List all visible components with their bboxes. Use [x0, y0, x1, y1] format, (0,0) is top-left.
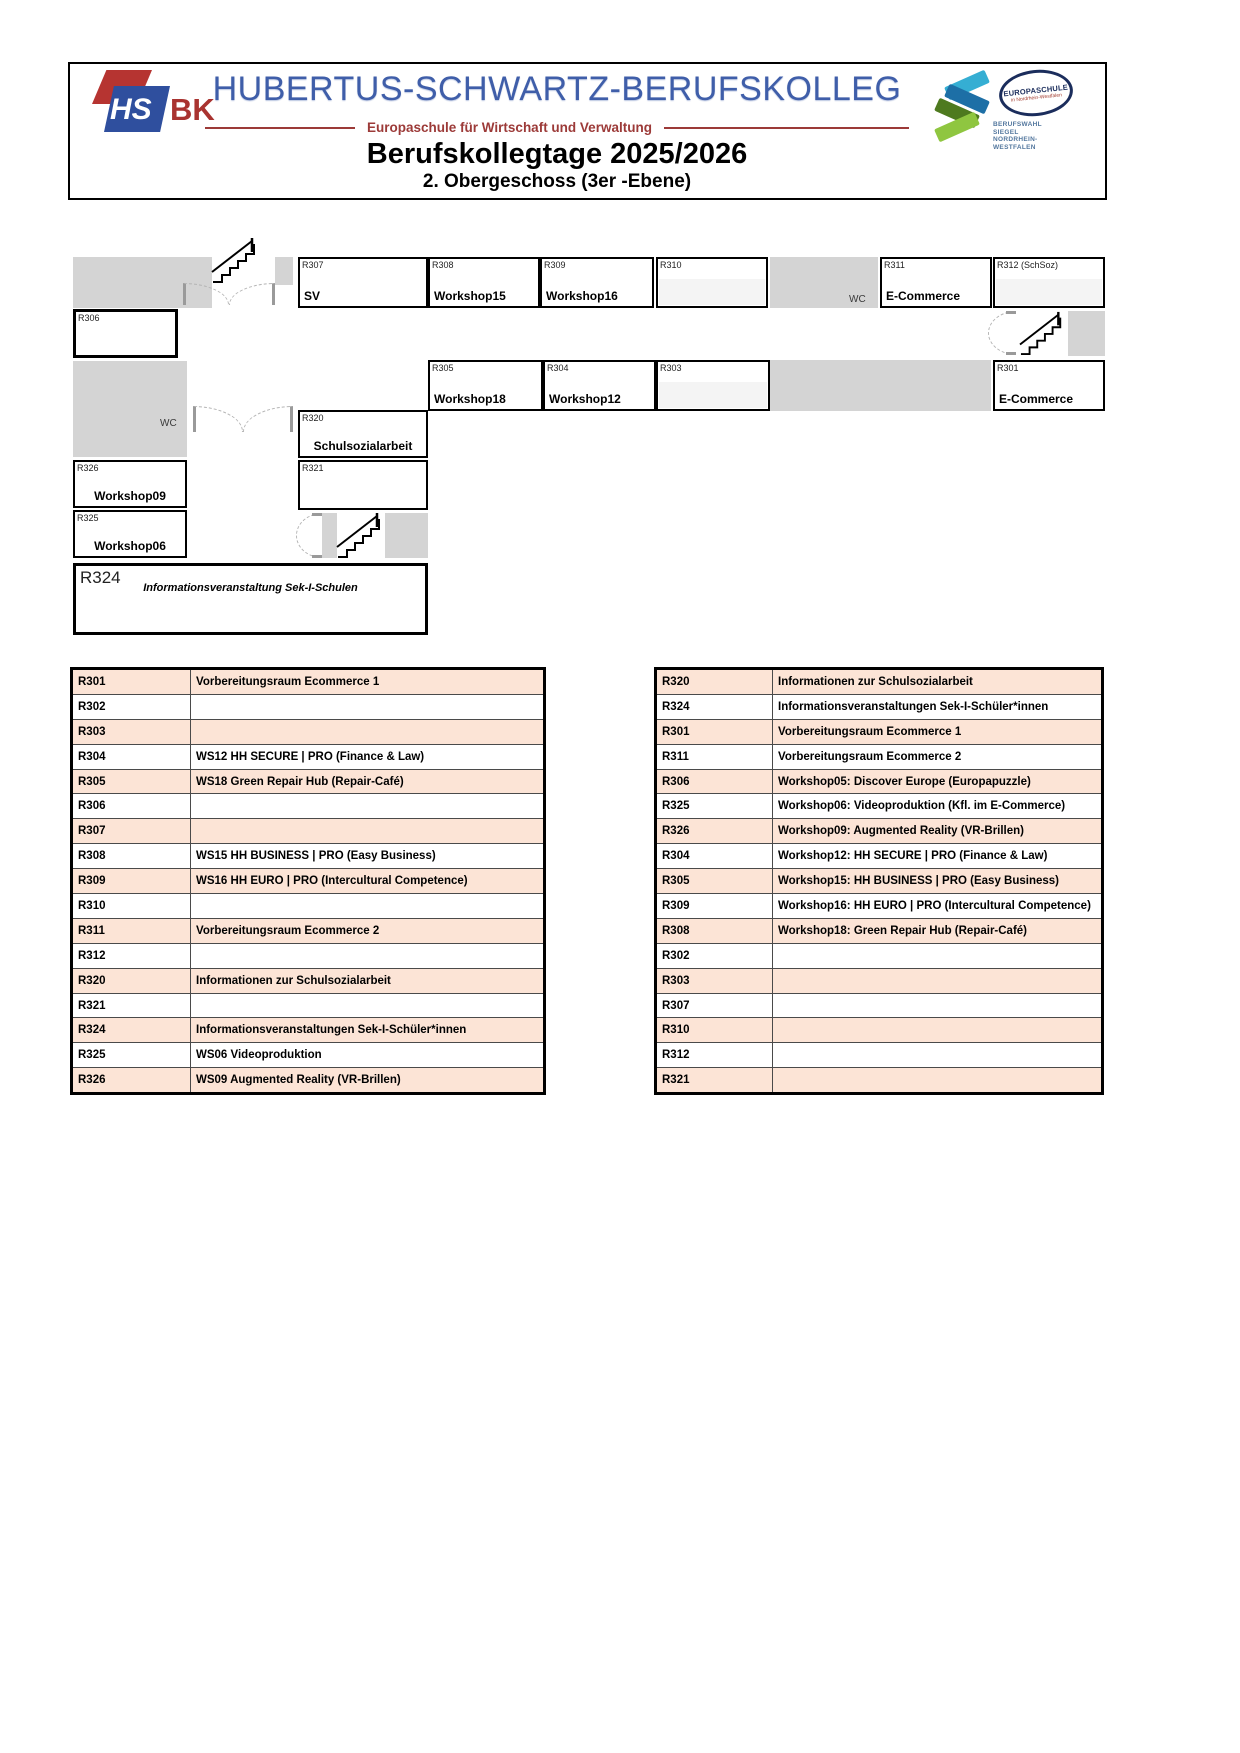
room-label-cell: Vorbereitungsraum Ecommerce 1 [773, 719, 1103, 744]
subtitle-row: Europaschule für Wirtschaft und Verwaltu… [157, 120, 957, 135]
room-label-cell [773, 1068, 1103, 1094]
room-label-cell [773, 1018, 1103, 1043]
wc-label-left: WC [160, 418, 177, 429]
room-assignment-table-left: R301 Vorbereitungsraum Ecommerce 1 R302 … [70, 667, 546, 1095]
table-row: R305 WS18 Green Repair Hub (Repair-Café) [72, 769, 545, 794]
table-row: R304 Workshop12: HH SECURE | PRO (Financ… [656, 844, 1103, 869]
table-row: R325 WS06 Videoproduktion [72, 1043, 545, 1068]
room-id: R307 [302, 260, 324, 270]
stairs-icon [336, 511, 386, 559]
room-number-cell: R310 [72, 894, 191, 919]
room-label: E-Commerce [886, 289, 960, 303]
room-label-cell [191, 943, 545, 968]
event-title: Berufskollegtage 2025/2026 [157, 138, 957, 171]
double-door-icon [193, 406, 293, 432]
room-number-cell: R308 [656, 918, 773, 943]
room-number-cell: R321 [72, 993, 191, 1018]
room-R301: R301 E-Commerce [993, 360, 1105, 411]
room-label-cell: WS09 Augmented Reality (VR-Brillen) [191, 1068, 545, 1094]
room-label-cell: WS06 Videoproduktion [191, 1043, 545, 1068]
door-leaf [243, 406, 293, 432]
room-label-cell: WS12 HH SECURE | PRO (Finance & Law) [191, 744, 545, 769]
door-icon [296, 513, 322, 558]
room-label-cell [191, 894, 545, 919]
table-row: R320 Informationen zur Schulsozialarbeit [72, 968, 545, 993]
siegel-line: WESTFALEN [993, 144, 1042, 152]
europaschule-badge: EUROPASCHULE in Nordrhein-Westfalen [997, 66, 1075, 119]
room-id: R305 [432, 363, 454, 373]
room-R325: R325 Workshop06 [73, 510, 187, 558]
room-label: Schulsozialarbeit [300, 439, 426, 453]
room-label: SV [304, 289, 320, 303]
room-label-cell [773, 943, 1103, 968]
room-label-cell: Vorbereitungsraum Ecommerce 2 [191, 918, 545, 943]
room-label: Workshop16 [546, 289, 618, 303]
table-row: R311 Vorbereitungsraum Ecommerce 2 [72, 918, 545, 943]
room-R324: R324 Informationsveranstaltung Sek-I-Sch… [73, 563, 428, 635]
floor-plan: WC WC [0, 210, 1140, 650]
empty-room-shading [659, 279, 765, 305]
table-row: R324 Informationsveranstaltungen Sek-I-S… [656, 694, 1103, 719]
room-R321: R321 [298, 460, 428, 510]
room-number-cell: R305 [656, 869, 773, 894]
room-label-cell [191, 819, 545, 844]
room-number-cell: R306 [72, 794, 191, 819]
room-number-cell: R312 [656, 1043, 773, 1068]
room-number-cell: R324 [72, 1018, 191, 1043]
room-R303: R303 [656, 360, 770, 411]
room-number-cell: R320 [656, 669, 773, 695]
double-door-icon [183, 283, 275, 305]
table-row: R312 [656, 1043, 1103, 1068]
room-R320: R320 Schulsozialarbeit [298, 410, 428, 458]
corridor-block-small [275, 257, 293, 285]
table-row: R324 Informationsveranstaltungen Sek-I-S… [72, 1018, 545, 1043]
room-number-cell: R320 [72, 968, 191, 993]
table-row: R311 Vorbereitungsraum Ecommerce 2 [656, 744, 1103, 769]
room-number-cell: R307 [656, 993, 773, 1018]
room-label-cell: Workshop16: HH EURO | PRO (Intercultural… [773, 894, 1103, 919]
room-number-cell: R302 [656, 943, 773, 968]
room-label-cell: WS18 Green Repair Hub (Repair-Café) [191, 769, 545, 794]
room-id: R309 [544, 260, 566, 270]
table-row: R312 [72, 943, 545, 968]
room-number-cell: R321 [656, 1068, 773, 1094]
room-number-cell: R309 [72, 869, 191, 894]
table-row: R303 [656, 968, 1103, 993]
wc-block-left [73, 361, 187, 457]
room-number-cell: R312 [72, 943, 191, 968]
room-R311: R311 E-Commerce [880, 257, 992, 308]
room-label-cell [773, 993, 1103, 1018]
table-row: R310 [72, 894, 545, 919]
room-number-cell: R308 [72, 844, 191, 869]
stairs-icon [211, 236, 261, 284]
room-id: R311 [884, 260, 905, 270]
room-label-cell: Vorbereitungsraum Ecommerce 2 [773, 744, 1103, 769]
room-number-cell: R301 [72, 669, 191, 695]
corridor-block-right [1068, 311, 1105, 356]
table-row: R304 WS12 HH SECURE | PRO (Finance & Law… [72, 744, 545, 769]
room-label-cell [191, 719, 545, 744]
hsbk-logo-hs-text: HS [110, 94, 152, 126]
berufswahl-siegel-text: BERUFSWAHL SIEGEL NORDRHEIN- WESTFALEN [993, 121, 1042, 151]
room-label: Workshop09 [75, 489, 185, 503]
room-label: Workshop18 [434, 392, 506, 406]
room-label-cell: Informationen zur Schulsozialarbeit [773, 669, 1103, 695]
header: HS BK HUBERTUS-SCHWARTZ-BERUFSKOLLEG Eur… [68, 62, 1107, 200]
europaschule-logo: EUROPASCHULE in Nordrhein-Westfalen BERU… [933, 68, 1078, 154]
room-id: R308 [432, 260, 454, 270]
table-row: R307 [656, 993, 1103, 1018]
room-number-cell: R302 [72, 694, 191, 719]
table-row: R307 [72, 819, 545, 844]
table-row: R326 Workshop09: Augmented Reality (VR-B… [656, 819, 1103, 844]
room-R326: R326 Workshop09 [73, 460, 187, 508]
door-icon [988, 311, 1016, 355]
table-row: R308 Workshop18: Green Repair Hub (Repai… [656, 918, 1103, 943]
room-id: R325 [77, 513, 99, 523]
room-label-cell: Workshop12: HH SECURE | PRO (Finance & L… [773, 844, 1103, 869]
siegel-line: BERUFSWAHL [993, 121, 1042, 129]
table-row: R303 [72, 719, 545, 744]
door-leaf [229, 283, 275, 305]
room-label-cell [191, 694, 545, 719]
empty-room-shading [996, 279, 1102, 305]
door-arc [296, 513, 322, 558]
door-leaf [193, 406, 243, 432]
room-label-cell [773, 1043, 1103, 1068]
room-number-cell: R311 [656, 744, 773, 769]
room-number-cell: R310 [656, 1018, 773, 1043]
room-label: Workshop12 [549, 392, 621, 406]
room-label-cell [773, 968, 1103, 993]
school-subtitle: Europaschule für Wirtschaft und Verwaltu… [367, 120, 652, 135]
table-row: R302 [656, 943, 1103, 968]
table-row: R309 WS16 HH EURO | PRO (Intercultural C… [72, 869, 545, 894]
room-label-cell: WS15 HH BUSINESS | PRO (Easy Business) [191, 844, 545, 869]
wc-label-top: WC [849, 294, 866, 305]
room-R312: R312 (SchSoz) [993, 257, 1105, 308]
room-number-cell: R325 [656, 794, 773, 819]
room-number-cell: R324 [656, 694, 773, 719]
floor-title: 2. Obergeschoss (3er -Ebene) [157, 171, 957, 193]
table-row: R302 [72, 694, 545, 719]
table-row: R326 WS09 Augmented Reality (VR-Brillen) [72, 1068, 545, 1094]
door-frame [1006, 352, 1016, 355]
room-label-cell: Workshop09: Augmented Reality (VR-Brille… [773, 819, 1103, 844]
stairs-icon [1018, 310, 1068, 356]
table-row: R308 WS15 HH BUSINESS | PRO (Easy Busine… [72, 844, 545, 869]
table-row: R301 Vorbereitungsraum Ecommerce 1 [72, 669, 545, 695]
school-name: HUBERTUS-SCHWARTZ-BERUFSKOLLEG [157, 70, 957, 109]
door-frame [312, 555, 322, 558]
room-number-cell: R309 [656, 894, 773, 919]
room-R309: R309 Workshop16 [540, 257, 654, 308]
room-label: Workshop06 [75, 539, 185, 553]
subtitle-rule-left [205, 127, 355, 129]
table-row: R321 [656, 1068, 1103, 1094]
room-label-cell: Informationsveranstaltungen Sek-I-Schüle… [191, 1018, 545, 1043]
room-number-cell: R306 [656, 769, 773, 794]
table-row: R306 [72, 794, 545, 819]
subtitle-rule-right [664, 127, 909, 129]
room-R310: R310 [656, 257, 768, 308]
corridor-block-bottom-2 [385, 513, 428, 558]
room-label-cell: Vorbereitungsraum Ecommerce 1 [191, 669, 545, 695]
room-id: R326 [77, 463, 99, 473]
room-number-cell: R303 [656, 968, 773, 993]
table-row: R325 Workshop06: Videoproduktion (Kfl. i… [656, 794, 1103, 819]
table-row: R310 [656, 1018, 1103, 1043]
room-label: E-Commerce [999, 392, 1073, 406]
table-row: R306 Workshop05: Discover Europe (Europa… [656, 769, 1103, 794]
room-number-cell: R305 [72, 769, 191, 794]
room-label-cell: Workshop18: Green Repair Hub (Repair-Caf… [773, 918, 1103, 943]
table-row: R301 Vorbereitungsraum Ecommerce 1 [656, 719, 1103, 744]
room-R305: R305 Workshop18 [428, 360, 543, 411]
room-R307: R307 SV [298, 257, 428, 308]
room-id: R312 (SchSoz) [997, 260, 1058, 270]
room-label-cell: Workshop15: HH BUSINESS | PRO (Easy Busi… [773, 869, 1103, 894]
room-id: R321 [302, 463, 324, 473]
room-number-cell: R301 [656, 719, 773, 744]
door-leaf [183, 283, 229, 305]
europaschule-ribbon-icon [933, 76, 991, 138]
room-number-cell: R326 [656, 819, 773, 844]
room-label-cell: Workshop05: Discover Europe (Europapuzzl… [773, 769, 1103, 794]
table-row: R321 [72, 993, 545, 1018]
room-label-cell: WS16 HH EURO | PRO (Intercultural Compet… [191, 869, 545, 894]
room-id: R306 [78, 313, 100, 323]
room-number-cell: R303 [72, 719, 191, 744]
table-row: R305 Workshop15: HH BUSINESS | PRO (Easy… [656, 869, 1103, 894]
room-id: R303 [660, 363, 682, 373]
room-label-cell: Informationsveranstaltungen Sek-I-Schüle… [773, 694, 1103, 719]
siegel-line: NORDRHEIN- [993, 136, 1042, 144]
room-number-cell: R311 [72, 918, 191, 943]
room-label: Workshop15 [434, 289, 506, 303]
room-number-cell: R326 [72, 1068, 191, 1094]
room-R304: R304 Workshop12 [543, 360, 656, 411]
room-label: Informationsveranstaltung Sek-I-Schulen [76, 582, 425, 594]
room-label-cell: Informationen zur Schulsozialarbeit [191, 968, 545, 993]
siegel-line: SIEGEL [993, 129, 1042, 137]
room-label-cell: Workshop06: Videoproduktion (Kfl. im E-C… [773, 794, 1103, 819]
room-number-cell: R304 [72, 744, 191, 769]
corridor-block-bottom-1 [322, 513, 337, 558]
room-R306: R306 [73, 309, 178, 358]
room-label-cell [191, 993, 545, 1018]
room-label-cell [191, 794, 545, 819]
table-row: R309 Workshop16: HH EURO | PRO (Intercul… [656, 894, 1103, 919]
corridor-middle [770, 360, 991, 411]
room-number-cell: R325 [72, 1043, 191, 1068]
room-assignment-table-right: R320 Informationen zur Schulsozialarbeit… [654, 667, 1104, 1095]
door-arc [988, 311, 1016, 355]
room-id: R301 [997, 363, 1019, 373]
room-id: R310 [660, 260, 682, 270]
empty-room-shading [659, 382, 767, 408]
room-id: R304 [547, 363, 569, 373]
flyer-page: HS BK HUBERTUS-SCHWARTZ-BERUFSKOLLEG Eur… [0, 0, 1240, 1753]
room-number-cell: R304 [656, 844, 773, 869]
room-R308: R308 Workshop15 [428, 257, 540, 308]
door-frame [1006, 311, 1016, 314]
room-number-cell: R307 [72, 819, 191, 844]
table-row: R320 Informationen zur Schulsozialarbeit [656, 669, 1103, 695]
door-frame [312, 513, 322, 516]
room-id: R320 [302, 413, 324, 423]
